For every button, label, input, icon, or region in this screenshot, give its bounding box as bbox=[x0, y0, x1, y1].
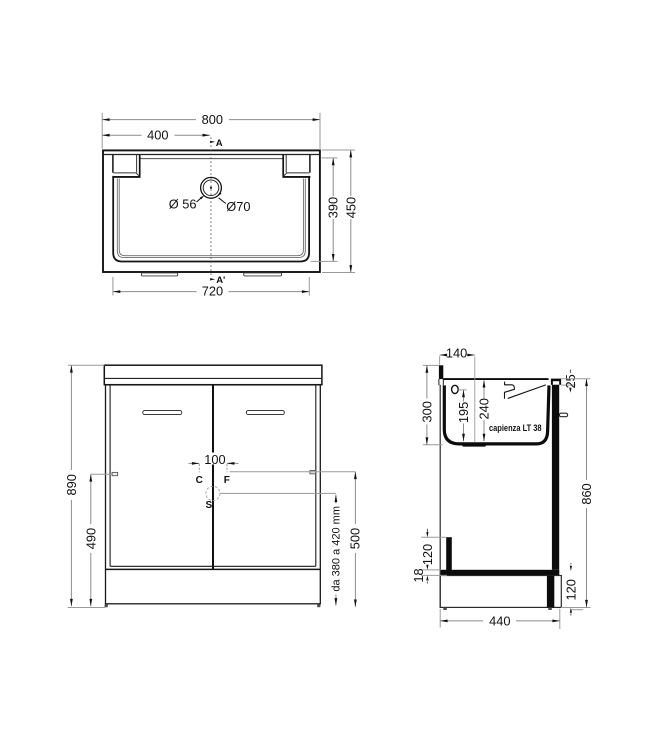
svg-text:890: 890 bbox=[64, 474, 79, 495]
svg-text:S: S bbox=[205, 500, 212, 511]
svg-text:860: 860 bbox=[579, 483, 594, 504]
svg-text:Ø70: Ø70 bbox=[226, 199, 250, 214]
svg-text:500: 500 bbox=[348, 528, 363, 549]
svg-text:capienza LT 38: capienza LT 38 bbox=[489, 423, 542, 433]
svg-text:A: A bbox=[216, 138, 223, 149]
svg-text:da 380 a 420 mm: da 380 a 420 mm bbox=[331, 506, 343, 592]
svg-text:120: 120 bbox=[563, 579, 578, 600]
svg-text:450: 450 bbox=[343, 197, 358, 218]
svg-text:490: 490 bbox=[83, 528, 98, 549]
svg-text:18: 18 bbox=[411, 568, 426, 582]
svg-text:440: 440 bbox=[489, 614, 510, 629]
svg-text:C: C bbox=[196, 475, 203, 486]
svg-text:120: 120 bbox=[420, 544, 435, 565]
svg-text:390: 390 bbox=[326, 197, 341, 218]
svg-text:100: 100 bbox=[204, 452, 225, 467]
svg-text:140: 140 bbox=[446, 346, 467, 361]
svg-text:240: 240 bbox=[476, 398, 491, 419]
svg-text:720: 720 bbox=[202, 284, 223, 299]
svg-text:25: 25 bbox=[563, 374, 578, 388]
svg-text:400: 400 bbox=[147, 128, 168, 143]
svg-text:800: 800 bbox=[202, 112, 223, 127]
svg-text:300: 300 bbox=[419, 401, 434, 422]
svg-text:Ø 56: Ø 56 bbox=[169, 197, 197, 212]
svg-text:195: 195 bbox=[456, 402, 471, 423]
svg-text:F: F bbox=[224, 475, 230, 486]
